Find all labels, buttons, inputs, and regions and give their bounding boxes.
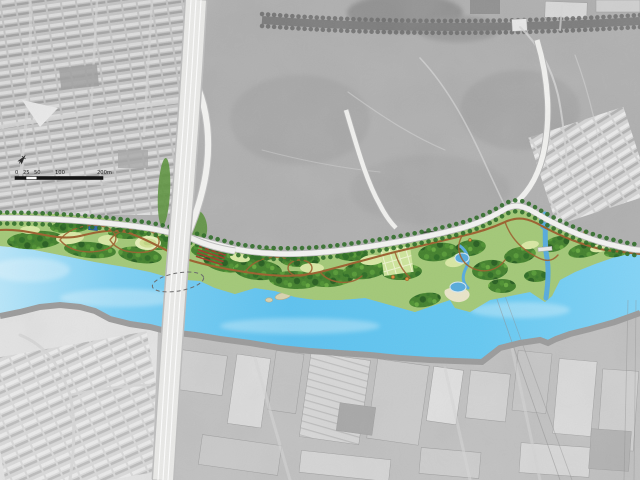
scale-bar-segments bbox=[15, 177, 103, 180]
scale-label-0: 0 bbox=[15, 170, 18, 176]
scale-label-50: 50 bbox=[34, 170, 41, 176]
scale-label-200m: 200m bbox=[97, 170, 112, 176]
scale-bar: 0 25 50 100 200m bbox=[15, 170, 112, 180]
site-plan-map: 0 25 50 100 200m bbox=[0, 0, 640, 480]
scale-label-100: 100 bbox=[55, 170, 65, 176]
masterplan-svg: 0 25 50 100 200m bbox=[0, 0, 640, 480]
scale-label-25: 25 bbox=[23, 170, 30, 176]
photo-grain-overlay bbox=[0, 0, 640, 480]
